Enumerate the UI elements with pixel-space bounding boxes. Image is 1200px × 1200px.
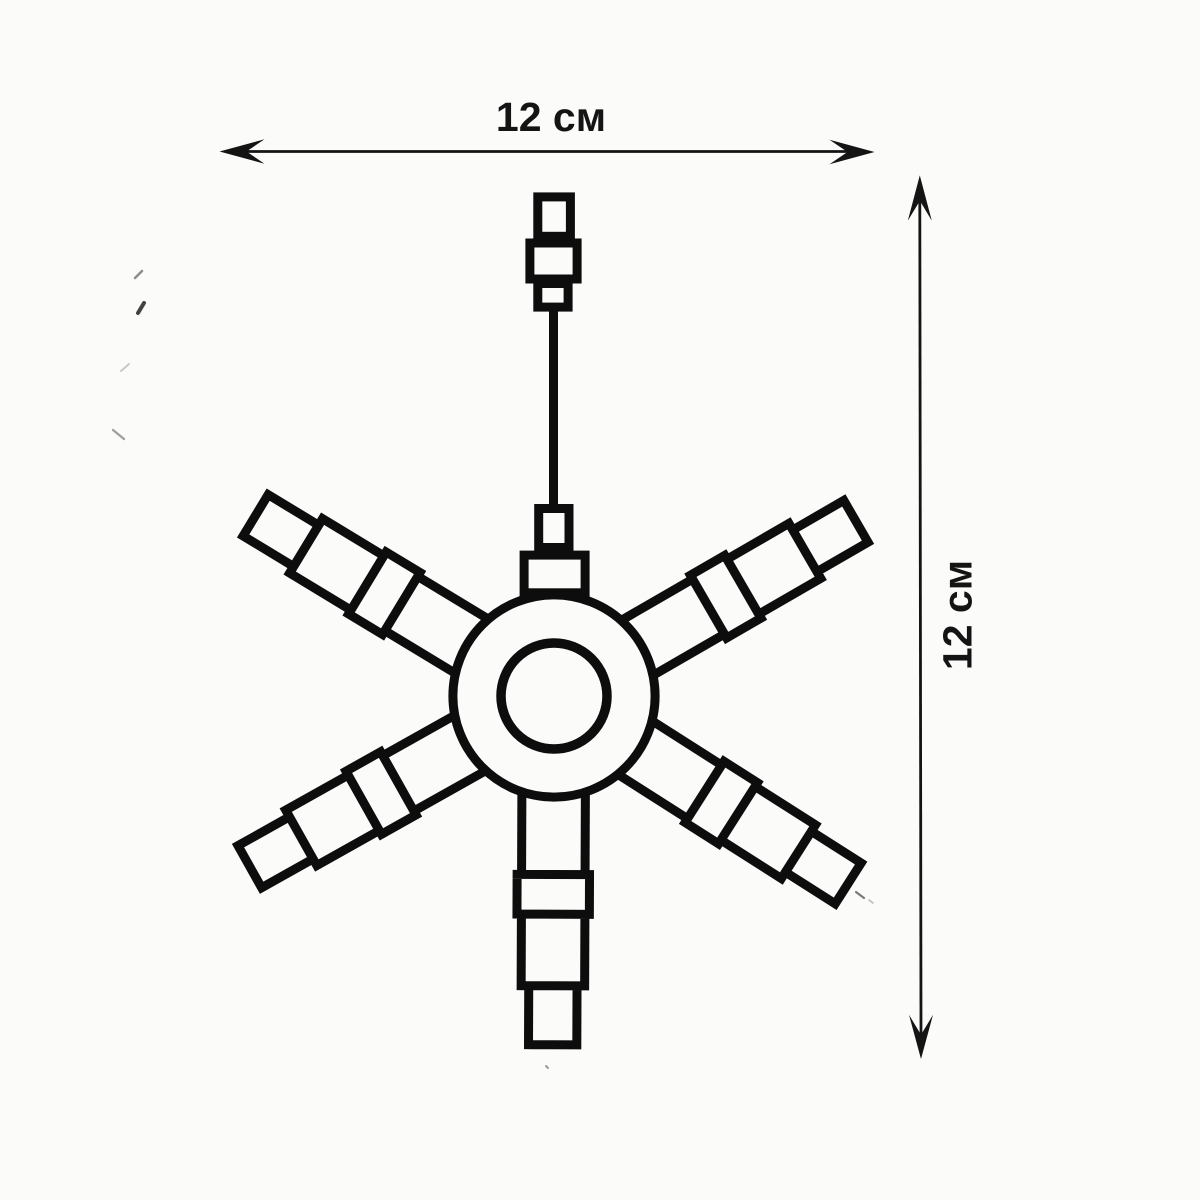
svg-text:12 см: 12 см	[496, 94, 606, 140]
svg-text:12 см: 12 см	[935, 560, 981, 670]
